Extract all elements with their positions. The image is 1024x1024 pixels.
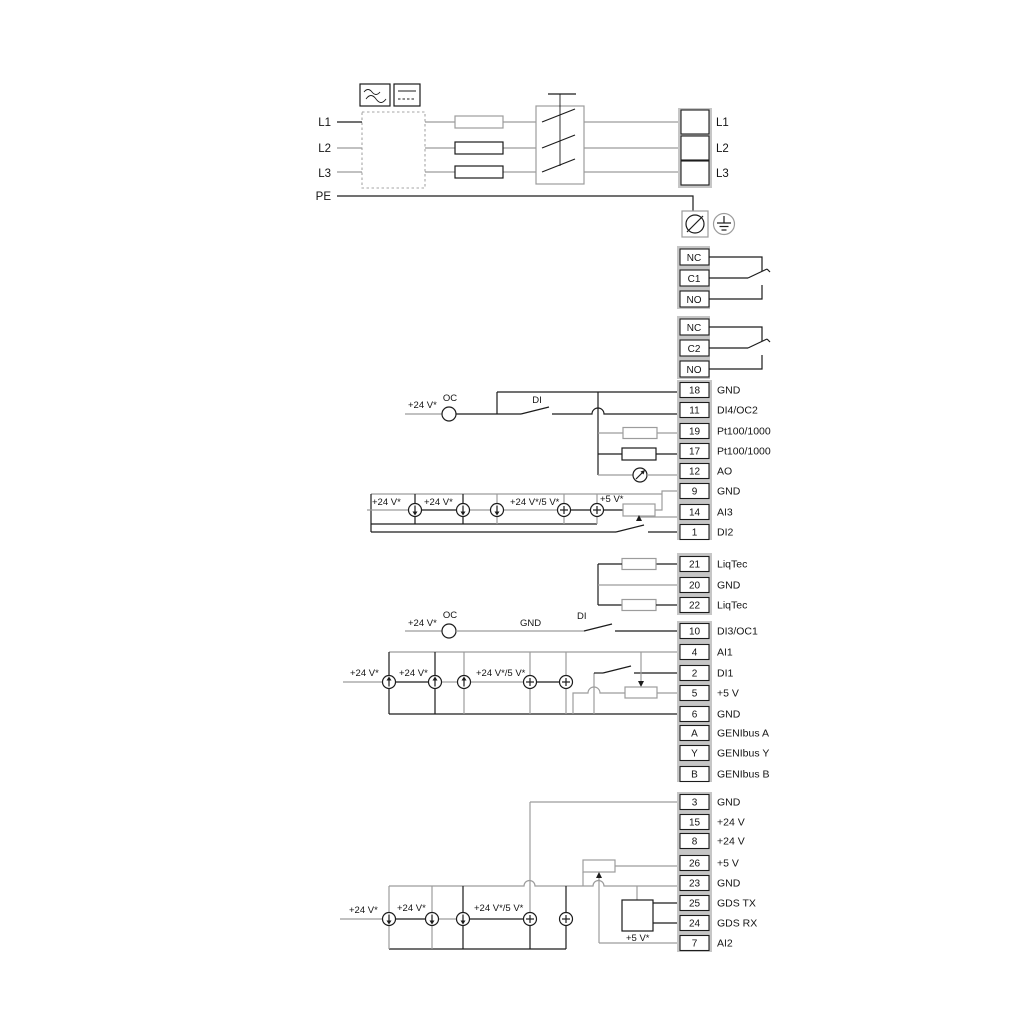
terminal-label: GENIbus B [717,769,770,781]
v24-5v-label: +24 V*/5 V* [476,668,526,679]
pt100-resistor-icon [623,428,657,439]
open-collector-icon [442,407,456,421]
potentiometer-icon [623,504,655,516]
terminal-label: AI1 [717,647,733,659]
gnd-label: GND [520,618,541,629]
relay1-terminal: NO [687,295,702,306]
terminal-number: 22 [689,601,701,612]
terminal-number: 23 [689,879,701,890]
phase-label-left: L1 [318,117,331,129]
terminal-number: 21 [689,560,701,571]
fuse-symbols [455,116,503,178]
open-collector-icon [442,624,456,638]
terminal-number: 12 [689,467,701,478]
terminal-number: 20 [689,581,701,592]
terminal-strip2: 10 4 2 5 6 Y B A DI3/OC1 AI1 DI1 +5 V GN… [677,621,770,782]
di1-switch-icon [603,666,631,673]
terminal-label: GND [717,709,741,721]
terminal-number: 26 [689,859,701,870]
terminal-label: AI2 [717,938,733,950]
phase-wires [337,122,681,172]
relay2-terminal: NC [687,323,701,334]
main-switch-symbol [536,94,584,184]
terminal-number: 2 [692,669,698,680]
terminal-label: GND [717,385,741,397]
ai2-sensor-loops [340,886,573,949]
di3-switch-icon [584,624,612,631]
terminal-number: 5 [692,689,698,700]
v5-label: +5 V* [600,494,624,505]
terminal-label: GDS RX [717,918,757,930]
di2-switch-icon [616,525,644,532]
v24-5v-label: +24 V*/5 V* [474,903,524,914]
liqtec-strip: 21 20 22 LiqTec GND LiqTec [677,553,747,615]
terminal-number: 15 [689,818,701,829]
v24-label: +24 V* [399,668,428,679]
v5-label: +5 V* [626,933,650,944]
terminal-number: 11 [689,406,700,417]
phase-label-right: L1 [716,117,729,129]
voltage-source-icon [524,913,573,926]
terminal-label: AO [717,466,732,478]
terminal-label: GENIbus A [717,728,769,740]
pe-label: PE [316,191,332,203]
filter-box [362,112,425,188]
terminal-label: LiqTec [717,600,747,612]
pe-wire [337,196,693,211]
terminal-number: 10 [689,627,701,638]
relay1-contact-wires [709,257,770,299]
phase-label-right: L2 [716,143,729,155]
wiring-diagram-page: L1 L2 L3 PE L1 L2 L3 NC C1 NO [0,0,1024,1024]
liqtec-resistor-icon [622,600,656,611]
terminal-number: 9 [692,487,698,498]
terminal-label: LiqTec [717,559,747,571]
v24-label: +24 V* [372,497,401,508]
terminal-label: DI2 [717,527,734,539]
strip3-wiring [340,802,680,949]
terminal-number: 6 [692,710,698,721]
v24-label: +24 V* [408,400,437,411]
terminal-label: DI3/OC1 [717,626,758,638]
v24-label: +24 V* [349,905,378,916]
terminal-number: 7 [692,939,698,950]
terminal-number: 8 [692,837,698,848]
terminal-label: AI3 [717,507,733,519]
relay2-block: NC C2 NO [677,316,770,379]
terminal-label: Pt100/1000 [717,426,771,438]
di4-switch-icon [521,407,549,414]
terminal-label: +5 V [717,688,739,700]
ai1-sensor-loops [343,652,680,714]
v24-label: +24 V* [350,668,379,679]
analog-output-meter-icon [633,468,647,482]
terminal-number: 17 [689,447,701,458]
liqtec-wiring [598,559,680,611]
power-input-section: L1 L2 L3 PE L1 L2 L3 [316,84,735,237]
terminal-label: +24 V [717,836,745,848]
terminal-number: 19 [689,427,701,438]
terminal-strip1: 18 11 19 17 12 9 14 1 GND DI4/OC2 Pt100/… [677,380,771,540]
terminal-number: 1 [692,528,698,539]
terminal-label: GENIbus Y [717,748,769,760]
phase-label-left: L2 [318,143,331,155]
terminal-number: 3 [692,798,698,809]
terminal-number: B [691,770,698,781]
ac-dc-converter-icon [360,84,420,106]
terminal-number: 14 [689,508,701,519]
terminal-label: GND [717,878,741,890]
terminal-number: 4 [692,648,698,659]
current-source-icon [383,913,470,926]
potentiometer-icon [583,860,615,872]
screw-terminal-icon [682,211,708,237]
v24-label: +24 V* [424,497,453,508]
mains-terminal-block [678,108,712,188]
terminal-number: A [691,729,698,740]
relay1-terminal: NC [687,253,701,264]
terminal-label: GDS TX [717,898,756,910]
di-label: DI [577,611,587,622]
wiring-diagram: L1 L2 L3 PE L1 L2 L3 NC C1 NO [0,0,1024,1024]
v24-label: +24 V* [397,903,426,914]
oc-label: OC [443,610,457,621]
gds-sensor-box [622,900,653,931]
relay2-terminal: NO [687,365,702,376]
relay2-terminal: C2 [688,344,701,355]
relay1-block: NC C1 NO [677,246,770,309]
relay2-contact-wires [709,327,770,369]
potentiometer-icon [625,687,657,698]
oc-label: OC [443,393,457,404]
terminal-number: 24 [689,919,701,930]
terminal-label: DI4/OC2 [717,405,758,417]
terminal-label: GND [717,580,741,592]
terminal-number: Y [691,749,698,760]
liqtec-resistor-icon [622,559,656,570]
terminal-label: +5 V [717,858,739,870]
terminal-label: DI1 [717,668,734,680]
terminal-label: Pt100/1000 [717,446,771,458]
phase-label-right: L3 [716,168,729,180]
phase-label-left: L3 [318,168,331,180]
terminal-label: GND [717,486,741,498]
relay1-terminal: C1 [688,274,701,285]
terminal-number: 25 [689,899,701,910]
pt100-resistor-icon [622,448,656,460]
earth-ground-icon [714,214,735,235]
v24-5v-label: +24 V*/5 V* [510,497,560,508]
terminal-number: 18 [689,386,701,397]
terminal-label: GND [717,797,741,809]
di-label: DI [532,395,542,406]
terminal-strip3: 3 15 8 26 23 25 24 7 GND +24 V +24 V +5 … [677,792,757,952]
v24-label: +24 V* [408,618,437,629]
strip1-wiring [367,392,680,532]
terminal-label: +24 V [717,817,745,829]
